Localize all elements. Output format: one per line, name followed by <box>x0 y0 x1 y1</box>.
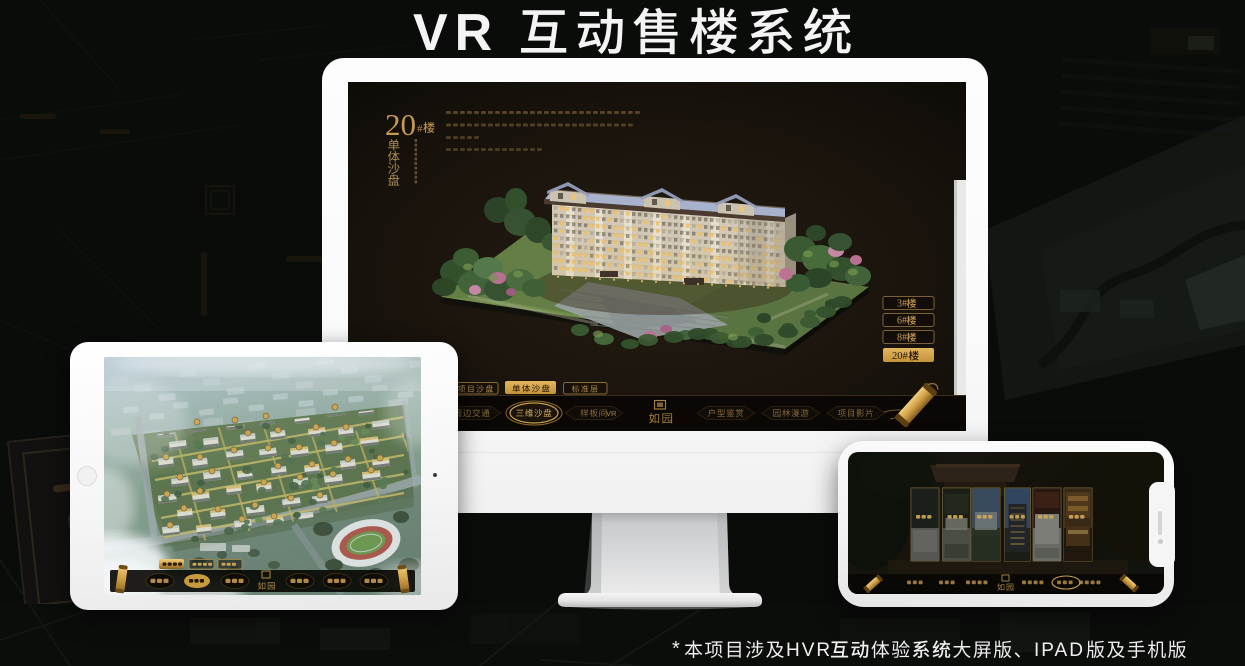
svg-text:IPAD: IPAD <box>1034 640 1085 661</box>
svg-text:8#: 8# <box>897 333 907 344</box>
svg-text:HVR: HVR <box>786 640 832 661</box>
svg-text:3#: 3# <box>897 299 907 310</box>
svg-text:6#: 6# <box>897 316 907 327</box>
svg-text:*: * <box>672 638 680 660</box>
svg-text:20#: 20# <box>892 351 909 362</box>
svg-text:VR: VR <box>606 409 617 418</box>
svg-text:#: # <box>417 123 423 135</box>
svg-text:20: 20 <box>385 107 416 142</box>
svg-text:VR: VR <box>413 4 499 62</box>
